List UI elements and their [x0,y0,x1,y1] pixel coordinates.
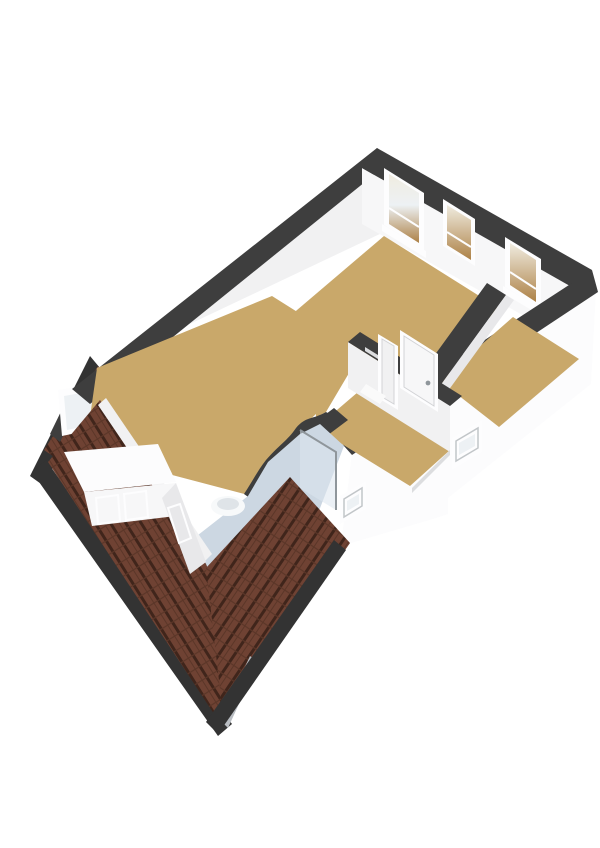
door-b-handle [426,381,431,386]
floorplan-3d-render [0,0,600,848]
floorplan-canvas [0,0,600,848]
door-a-panel [382,339,394,404]
washbasin-bowl [217,498,239,510]
